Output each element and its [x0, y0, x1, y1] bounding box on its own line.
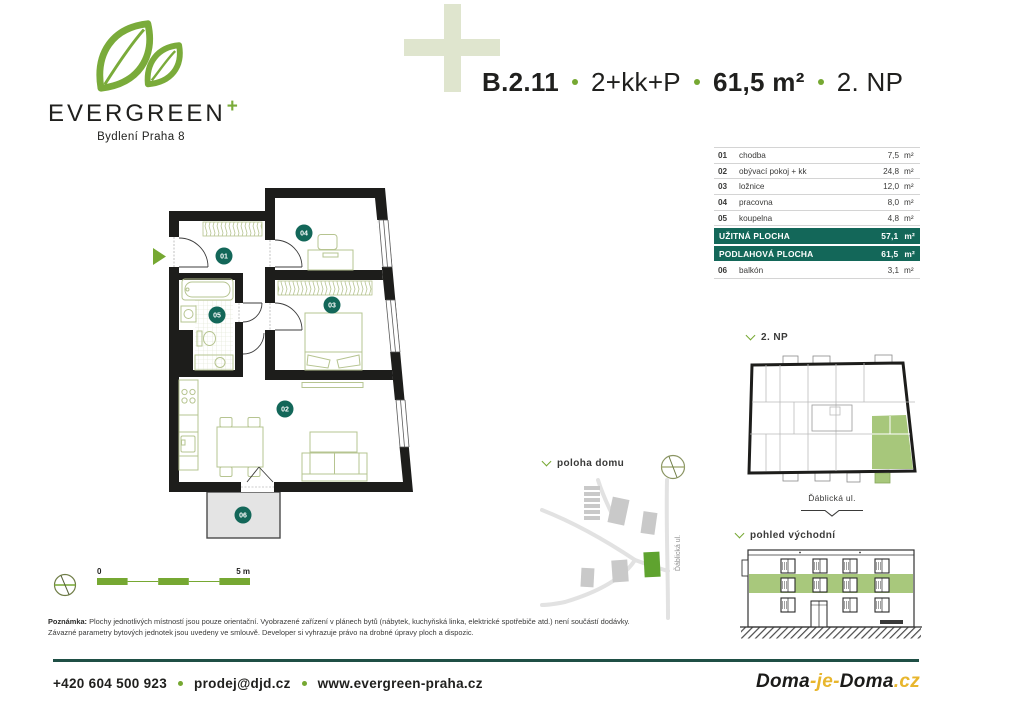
partner-logo-part: je [817, 671, 833, 692]
roads [542, 480, 668, 618]
elevation-title: pohled východní [736, 530, 835, 541]
project-building-highlight [643, 552, 660, 578]
partner-logo-part: - [833, 671, 840, 692]
disclaimer-note: Poznámka: Plochy jednotlivých místností … [48, 616, 740, 638]
note-text-1: Plochy jednotlivých místností jsou pouze… [89, 617, 630, 626]
room-area-value: 7,5 [868, 151, 904, 160]
room-area-value: 8,0 [868, 198, 904, 207]
site-street-label: Ďáblická ul. [673, 535, 682, 571]
unit-id: B.2.11 [482, 67, 559, 98]
banner-unit: m² [904, 249, 915, 259]
banner-unit: m² [904, 231, 915, 241]
side-annex [742, 560, 748, 576]
table-row: 06 balkón 3,1 m² [714, 263, 920, 279]
room-number: 04 [714, 198, 739, 207]
partner-logo-part: - [810, 671, 817, 692]
bullet-separator-icon [302, 681, 307, 686]
unit-area: 61,5 m² [713, 67, 805, 98]
room-area-unit: m² [904, 182, 920, 191]
banner-label: PODLAHOVÁ PLOCHA [719, 249, 813, 259]
chevron-down-icon [746, 331, 756, 341]
room-number: 06 [714, 266, 739, 275]
room-label-03: 03 [328, 303, 336, 310]
room-area-unit: m² [904, 151, 920, 160]
room-name: pracovna [739, 198, 868, 207]
scale-zero-label: 0 [97, 567, 102, 576]
partner-logo-part: cz [899, 671, 920, 692]
phone-number: +420 604 500 923 [53, 676, 167, 691]
floor-overview-title-text: 2. NP [761, 332, 788, 343]
banner-value: 57,1 [881, 231, 898, 241]
table-row: 03 ložnice 12,0 m² [714, 179, 920, 195]
unit-title-row: B.2.11 2+kk+P 61,5 m² 2. NP [482, 63, 903, 101]
highlighted-unit [872, 415, 913, 469]
room-number: 01 [714, 151, 739, 160]
unit-floor: 2. NP [837, 67, 904, 98]
room-area-value: 24,8 [868, 167, 904, 176]
footer-contact: +420 604 500 923 prodej@djd.cz www.everg… [53, 676, 483, 691]
bullet-separator-icon [818, 79, 824, 85]
room-label-01: 01 [220, 254, 228, 261]
ground-hatch [740, 627, 922, 639]
usable-area-banner: UŽITNÁ PLOCHA 57,1 m² [714, 228, 920, 244]
room-label-04: 04 [300, 231, 308, 238]
leaves-icon [86, 12, 196, 96]
entry-arrow-icon [153, 248, 166, 265]
bullet-separator-icon [572, 79, 578, 85]
website-url[interactable]: www.evergreen-praha.cz [318, 676, 483, 691]
room-area-unit: m² [904, 198, 920, 207]
brand-name: EVERGREEN+ [48, 100, 234, 128]
room-name: chodba [739, 151, 868, 160]
bullet-separator-icon [178, 681, 183, 686]
email-address[interactable]: prodej@djd.cz [194, 676, 291, 691]
scale-bar: 0 5 m [50, 560, 270, 600]
room-number: 05 [714, 214, 739, 223]
room-name: balkón [739, 266, 868, 275]
room-label-06: 06 [239, 513, 247, 520]
floor-area-banner: PODLAHOVÁ PLOCHA 61,5 m² [714, 246, 920, 262]
table-row: 05 koupelna 4,8 m² [714, 211, 920, 227]
unit-layout: 2+kk+P [591, 67, 681, 98]
room-number: 02 [714, 167, 739, 176]
room-name: ložnice [739, 182, 868, 191]
brand-plus-icon: + [227, 96, 238, 117]
room-label-02: 02 [281, 407, 289, 414]
room-area-unit: m² [904, 214, 920, 223]
banner-value: 61,5 [881, 249, 898, 259]
room-name: koupelna [739, 214, 868, 223]
scale-five-label: 5 m [236, 567, 250, 576]
elevation-title-text: pohled východní [750, 530, 835, 541]
unit-floor-plan: 01 04 03 05 02 06 [140, 170, 440, 550]
floor-overview-title: 2. NP [747, 332, 788, 343]
chevron-down-icon [735, 529, 745, 539]
room-area-value: 4,8 [868, 214, 904, 223]
room-label-05: 05 [213, 313, 221, 320]
room-area-table: 01 chodba 7,5 m² 02 obývací pokoj + kk 2… [714, 147, 920, 279]
chevron-down-icon [542, 457, 552, 467]
overview-street-label: Ďáblická ul. [742, 493, 922, 503]
highlighted-unit-balcony [875, 473, 890, 483]
partner-logo-part: Doma [756, 671, 810, 692]
room-area-value: 3,1 [868, 266, 904, 275]
retaining-wall [880, 620, 903, 624]
striped-building [584, 486, 600, 520]
entrance-door [811, 601, 827, 627]
note-line-2: Závazné parametry bytových jednotek jsou… [48, 627, 740, 638]
banner-label: UŽITNÁ PLOCHA [719, 231, 790, 241]
note-label: Poznámka: [48, 617, 87, 626]
brochure-page: EVERGREEN+ Bydlení Praha 8 B.2.11 2+kk+P… [0, 0, 1024, 724]
site-plan-title: poloha domu [543, 458, 624, 469]
street-direction-arrow [801, 507, 863, 518]
room-area-unit: m² [904, 266, 920, 275]
brand-name-text: EVERGREEN [48, 100, 226, 127]
brand-tagline: Bydlení Praha 8 [48, 131, 234, 143]
partner-logo-part: Doma [840, 671, 894, 692]
site-plan-map: Ďáblická ul. [540, 478, 692, 623]
room-number: 03 [714, 182, 739, 191]
room-name: obývací pokoj + kk [739, 167, 868, 176]
partner-logo: Doma-je-Doma.cz [738, 671, 920, 693]
room-area-unit: m² [904, 167, 920, 176]
table-row: 01 chodba 7,5 m² [714, 147, 920, 164]
floor-overview-plan [742, 350, 922, 490]
note-text-2: Závazné parametry bytových jednotek jsou… [48, 628, 474, 637]
site-plan-title-text: poloha domu [557, 458, 624, 469]
table-row: 02 obývací pokoj + kk 24,8 m² [714, 164, 920, 180]
compass-icon [55, 575, 76, 596]
table-row: 04 pracovna 8,0 m² [714, 195, 920, 211]
bullet-separator-icon [694, 79, 700, 85]
footer-divider [53, 659, 919, 662]
room-area-value: 12,0 [868, 182, 904, 191]
elevation-drawing [740, 547, 922, 647]
note-line-1: Poznámka: Plochy jednotlivých místností … [48, 616, 740, 627]
evergreen-logo: EVERGREEN+ Bydlení Praha 8 [48, 12, 234, 143]
